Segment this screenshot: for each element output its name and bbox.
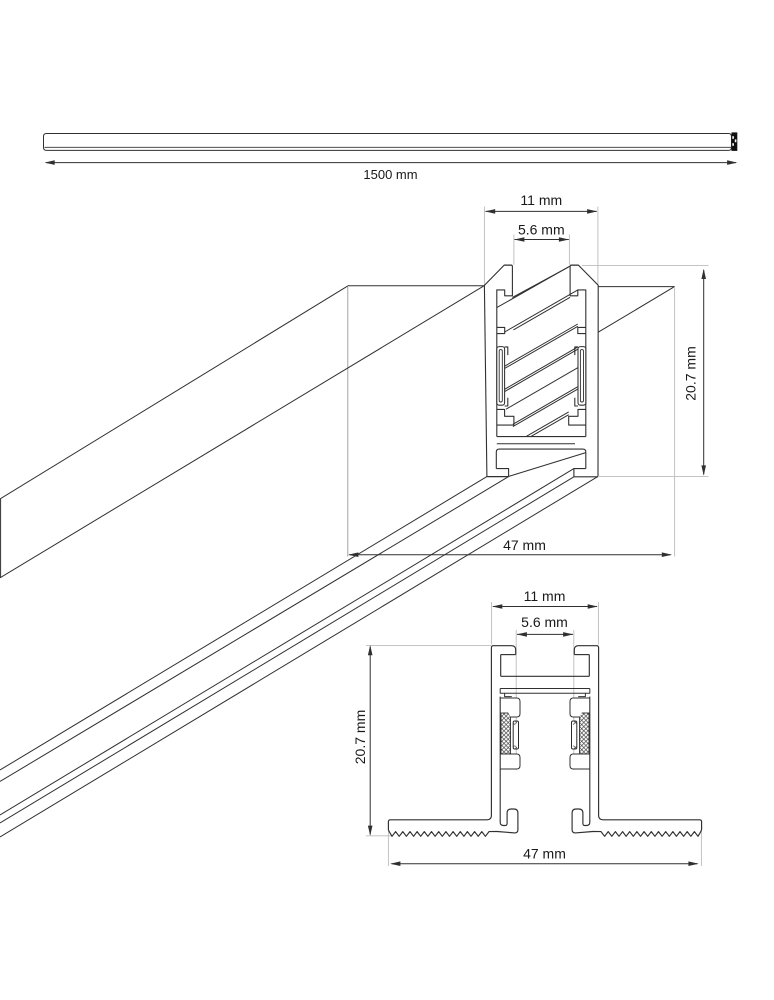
svg-text:5.6 mm: 5.6 mm bbox=[521, 614, 568, 630]
svg-text:11 mm: 11 mm bbox=[520, 192, 562, 208]
svg-text:20.7 mm: 20.7 mm bbox=[683, 346, 699, 400]
svg-text:11 mm: 11 mm bbox=[524, 588, 566, 604]
svg-text:5.6 mm: 5.6 mm bbox=[518, 222, 565, 238]
svg-text:1500 mm: 1500 mm bbox=[363, 167, 417, 182]
svg-text:47 mm: 47 mm bbox=[503, 537, 546, 553]
svg-text:20.7 mm: 20.7 mm bbox=[352, 710, 368, 764]
svg-text:47 mm: 47 mm bbox=[523, 846, 566, 862]
